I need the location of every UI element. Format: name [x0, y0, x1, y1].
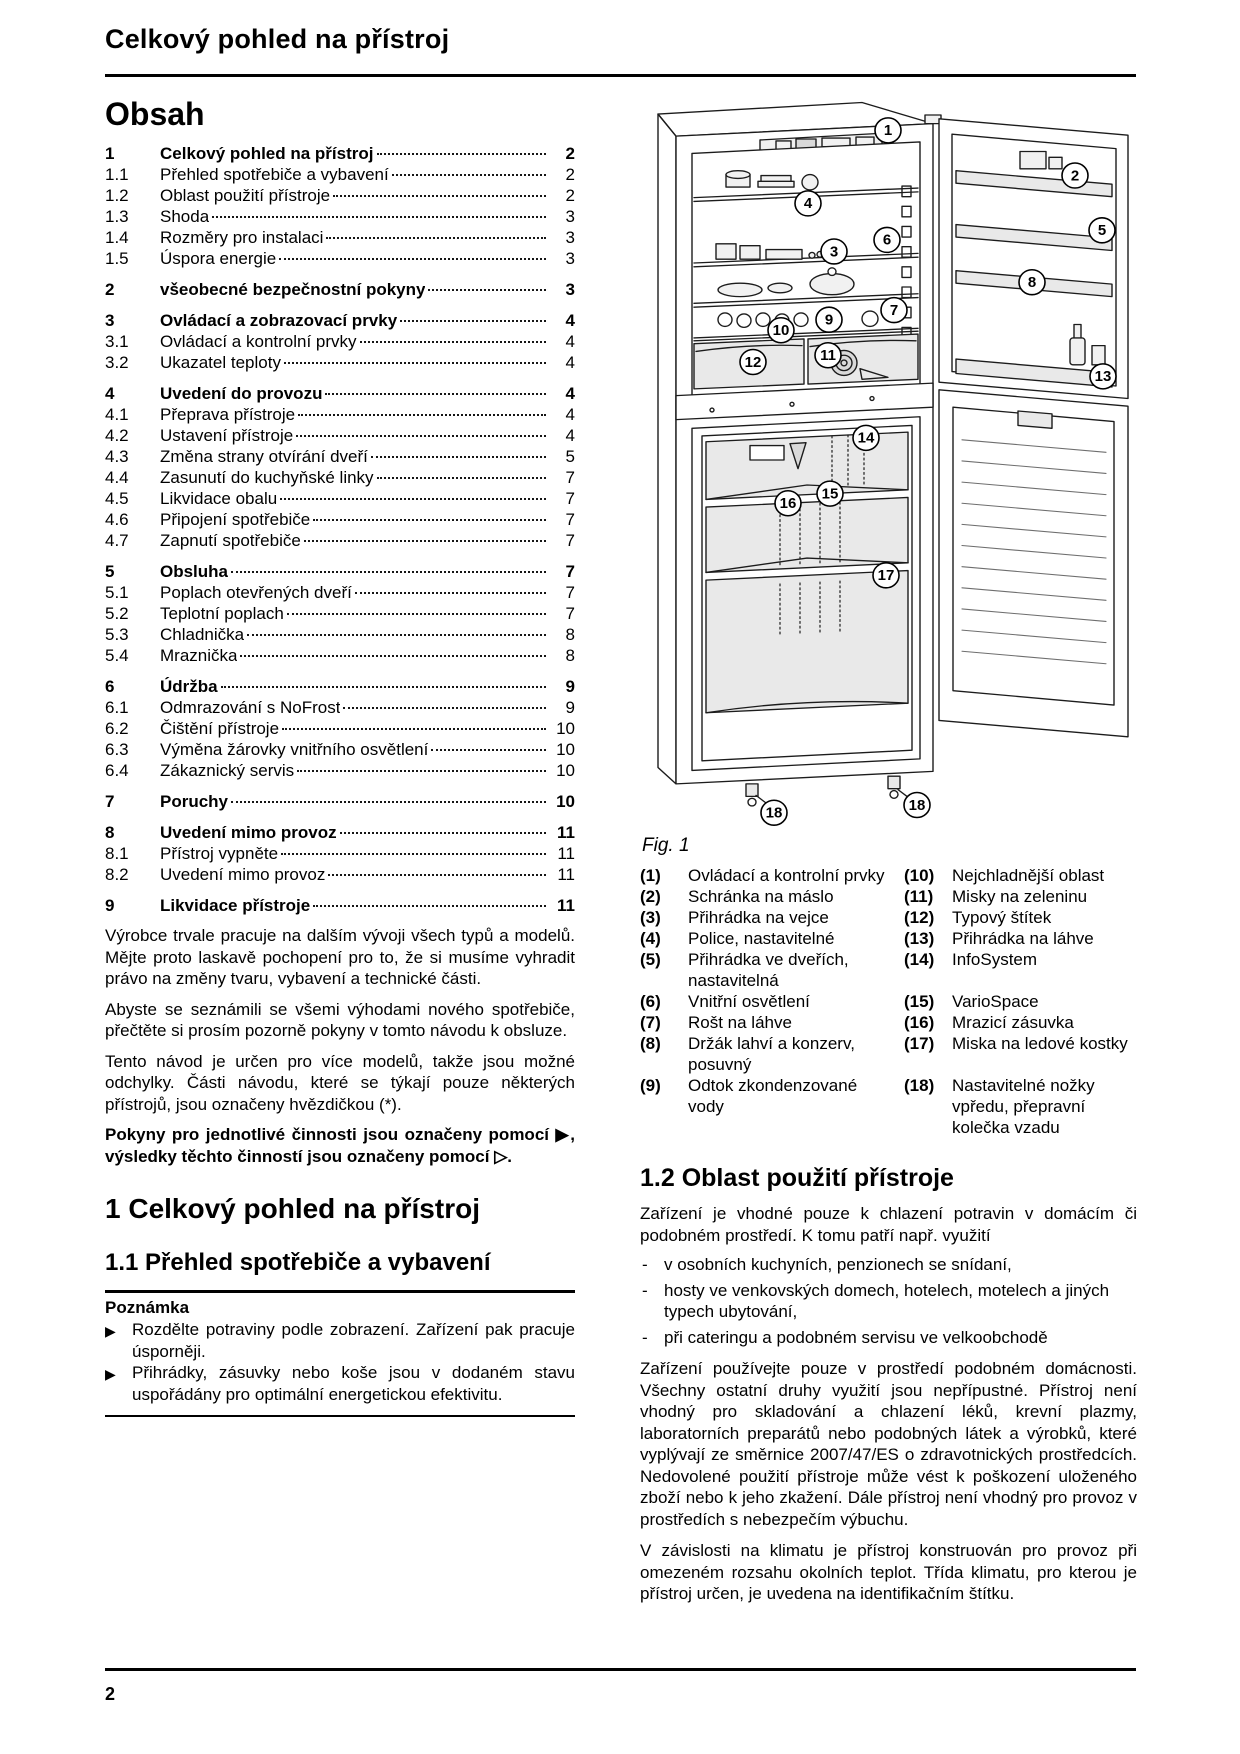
- svg-text:17: 17: [878, 568, 895, 584]
- svg-text:18: 18: [766, 806, 783, 822]
- toc-entry-page: 2: [549, 185, 575, 206]
- callout-2: 2: [1062, 163, 1088, 188]
- toc-row: 4.2 Ustavení přístroje 4: [105, 425, 575, 446]
- toc-entry-title: Teplotní poplach: [160, 603, 284, 624]
- legend-item-number: (4): [640, 928, 688, 949]
- freezer-door-handle-recess: [1018, 411, 1052, 428]
- legend-item-text: Rošt na láhve: [688, 1012, 896, 1033]
- toc-entry-title: Ovládací a kontrolní prvky: [160, 331, 357, 352]
- left-column: Obsah 1 Celkový pohled na přístroj 2 1.1…: [105, 92, 575, 1417]
- toc-entry-title: Uvedení do provozu: [160, 383, 322, 404]
- legend-item-number: (10): [904, 865, 952, 886]
- toc-row: 6.2 Čištění přístroje 10: [105, 718, 575, 739]
- legend-item: (16) Mrazicí zásuvka: [904, 1012, 1137, 1033]
- toc-entry-title: Zákaznický servis: [160, 760, 294, 781]
- legend-item-number: (13): [904, 928, 952, 949]
- action-triangle-icon: ▶: [105, 1319, 132, 1362]
- callout-18-left: 18: [761, 800, 787, 825]
- callout-4: 4: [795, 191, 821, 216]
- toc-entry-page: 4: [549, 331, 575, 352]
- section-1-2-paragraph: Zařízení používejte pouze v prostředí po…: [640, 1358, 1137, 1530]
- toc-entry-title: Výměna žárovky vnitřního osvětlení: [160, 739, 428, 760]
- legend-item-number: (16): [904, 1012, 952, 1033]
- svg-text:8: 8: [1028, 275, 1036, 291]
- callout-15: 15: [817, 481, 843, 506]
- legend-item-text: Police, nastavitelné: [688, 928, 896, 949]
- toc-entry-number: 6.2: [105, 718, 160, 739]
- toc-entry-number: 4.3: [105, 446, 160, 467]
- section-1-heading: 1 Celkový pohled na přístroj: [105, 1193, 575, 1225]
- toc-entry-page: 8: [549, 624, 575, 645]
- legend-item: (4) Police, nastavitelné: [640, 928, 896, 949]
- toc-entry-title: Rozměry pro instalaci: [160, 227, 323, 248]
- toc-row: 4.4 Zasunutí do kuchyňské linky 7: [105, 467, 575, 488]
- svg-text:4: 4: [804, 196, 813, 212]
- toc-row: 4.7 Zapnutí spotřebiče 7: [105, 530, 575, 551]
- toc-entry-title: Ukazatel teploty: [160, 352, 281, 373]
- toc-heading: Obsah: [105, 96, 575, 133]
- toc-entry-number: 5: [105, 561, 160, 582]
- toc-row: 8.2 Uvedení mimo provoz 11: [105, 864, 575, 885]
- legend-item-number: (18): [904, 1075, 952, 1096]
- toc-entry-number: 3: [105, 310, 160, 331]
- toc-entry-title: Likvidace přístroje: [160, 895, 310, 916]
- legend-item-text: Miska na ledové kostky: [952, 1033, 1137, 1054]
- svg-text:10: 10: [773, 323, 790, 339]
- table-of-contents: 1 Celkový pohled na přístroj 2 1.1 Přehl…: [105, 143, 575, 916]
- toc-row: 6 Údržba 9: [105, 676, 575, 697]
- toc-entry-title: Oblast použití přístroje: [160, 185, 330, 206]
- legend-item-number: (6): [640, 991, 688, 1012]
- callout-8: 8: [1019, 270, 1045, 295]
- fridge-figure: 1 2 4 5 6 3 8 7 9 10 11 12 13 14 15 16 1…: [640, 90, 1137, 830]
- usage-bullet-text: při cateringu a podobném servisu ve velk…: [664, 1327, 1137, 1349]
- toc-row: 1.5 Úspora energie 3: [105, 248, 575, 269]
- toc-dot-leader: [279, 258, 546, 260]
- legend-item: (17) Miska na ledové kostky: [904, 1033, 1137, 1075]
- toc-dot-leader: [282, 728, 546, 730]
- toc-entry-number: 1.5: [105, 248, 160, 269]
- toc-row: 4.3 Změna strany otvírání dveří 5: [105, 446, 575, 467]
- toc-entry-page: 7: [549, 561, 575, 582]
- legend-item: (2) Schránka na máslo: [640, 886, 896, 907]
- svg-text:5: 5: [1098, 223, 1106, 239]
- svg-text:11: 11: [820, 348, 836, 364]
- toc-entry-page: 3: [549, 248, 575, 269]
- toc-entry-page: 3: [549, 206, 575, 227]
- toc-dot-leader: [212, 216, 546, 218]
- legend-item-number: (1): [640, 865, 688, 886]
- toc-entry-number: 9: [105, 895, 160, 916]
- toc-entry-title: Ustavení přístroje: [160, 425, 293, 446]
- toc-entry-number: 4.4: [105, 467, 160, 488]
- freezer-door: [939, 390, 1128, 737]
- legend-item-text: Odtok zkondenzované vody: [688, 1075, 896, 1117]
- toc-row: 4.1 Přeprava přístroje 4: [105, 404, 575, 425]
- legend-item: (3) Přihrádka na vejce: [640, 907, 896, 928]
- toc-row: 5.4 Mraznička 8: [105, 645, 575, 666]
- toc-row: 5 Obsluha 7: [105, 561, 575, 582]
- callout-18-right: 18: [904, 793, 930, 818]
- legend-item: (14) InfoSystem: [904, 949, 1137, 991]
- right-column: 1 2 4 5 6 3 8 7 9 10 11 12 13 14 15 16 1…: [640, 90, 1137, 1605]
- toc-dot-leader: [296, 435, 546, 437]
- legend-item-number: (12): [904, 907, 952, 928]
- callout-17: 17: [873, 563, 899, 588]
- adjustable-foot: [746, 784, 758, 796]
- toc-dot-leader: [360, 341, 546, 343]
- toc-row: 5.3 Chladnička 8: [105, 624, 575, 645]
- toc-row: 3.1 Ovládací a kontrolní prvky 4: [105, 331, 575, 352]
- legend-item-text: Nejchladnější oblast: [952, 865, 1137, 886]
- toc-dot-leader: [333, 195, 546, 197]
- legend-item-text: Nastavitelné nožky vpředu, přepravní kol…: [952, 1075, 1137, 1138]
- toc-dot-leader: [280, 498, 546, 500]
- toc-entry-number: 6.4: [105, 760, 160, 781]
- legend-item: (15) VarioSpace: [904, 991, 1137, 1012]
- toc-entry-title: Přístroj vypněte: [160, 843, 278, 864]
- toc-entry-number: 2: [105, 279, 160, 300]
- toc-entry-title: Ovládací a zobrazovací prvky: [160, 310, 397, 331]
- intro-bold-paragraph: Pokyny pro jednotlivé činnosti jsou ozna…: [105, 1124, 575, 1167]
- toc-entry-number: 1.1: [105, 164, 160, 185]
- toc-entry-page: 11: [549, 843, 575, 864]
- toc-entry-number: 8: [105, 822, 160, 843]
- figure-legend: (1) Ovládací a kontrolní prvky (10) Nejc…: [640, 865, 1137, 1138]
- legend-item: (9) Odtok zkondenzované vody: [640, 1075, 896, 1138]
- legend-item: (1) Ovládací a kontrolní prvky: [640, 865, 896, 886]
- toc-dot-leader: [304, 540, 546, 542]
- toc-entry-number: 5.3: [105, 624, 160, 645]
- toc-entry-page: 4: [549, 404, 575, 425]
- toc-entry-number: 4.2: [105, 425, 160, 446]
- toc-dot-leader: [313, 905, 546, 907]
- note-bullet-text: Přihrádky, zásuvky nebo koše jsou v doda…: [132, 1362, 575, 1405]
- toc-row: 8 Uvedení mimo provoz 11: [105, 822, 575, 843]
- toc-dot-leader: [340, 832, 546, 834]
- toc-dot-leader: [284, 362, 546, 364]
- dash-marker: -: [640, 1280, 664, 1323]
- toc-row: 1.2 Oblast použití přístroje 2: [105, 185, 575, 206]
- toc-dot-leader: [392, 174, 546, 176]
- toc-entry-number: 4: [105, 383, 160, 404]
- toc-entry-number: 3.1: [105, 331, 160, 352]
- section-1-1-heading: 1.1 Přehled spotřebiče a vybavení: [105, 1249, 575, 1277]
- toc-dot-leader: [355, 592, 546, 594]
- callout-3: 3: [821, 239, 847, 264]
- callout-16: 16: [775, 491, 801, 516]
- toc-entry-title: Přehled spotřebiče a vybavení: [160, 164, 389, 185]
- note-bullet: ▶ Rozdělte potraviny podle zobrazení. Za…: [105, 1319, 575, 1362]
- toc-entry-number: 7: [105, 791, 160, 812]
- legend-item: (13) Přihrádka na láhve: [904, 928, 1137, 949]
- legend-item-text: Typový štítek: [952, 907, 1137, 928]
- toc-entry-page: 11: [549, 864, 575, 885]
- toc-dot-leader: [221, 686, 546, 688]
- usage-bullet-text: hosty ve venkovských domech, hotelech, m…: [664, 1280, 1137, 1323]
- toc-row: 2 všeobecné bezpečnostní pokyny 3: [105, 279, 575, 300]
- note-title: Poznámka: [105, 1297, 575, 1319]
- toc-entry-title: Zasunutí do kuchyňské linky: [160, 467, 374, 488]
- legend-item-number: (5): [640, 949, 688, 970]
- toc-entry-number: 1.3: [105, 206, 160, 227]
- adjustable-foot: [888, 776, 900, 788]
- toc-entry-title: Odmrazování s NoFrost: [160, 697, 340, 718]
- section-1-2-heading: 1.2 Oblast použití přístroje: [640, 1164, 1137, 1193]
- usage-bullet: - při cateringu a podobném servisu ve ve…: [640, 1327, 1137, 1349]
- toc-dot-leader: [281, 853, 546, 855]
- svg-text:6: 6: [883, 233, 891, 249]
- callout-10: 10: [768, 318, 794, 343]
- legend-item-number: (8): [640, 1033, 688, 1054]
- toc-dot-leader: [400, 320, 546, 322]
- legend-item: (10) Nejchladnější oblast: [904, 865, 1137, 886]
- legend-item: (6) Vnitřní osvětlení: [640, 991, 896, 1012]
- legend-item-text: Přihrádka na láhve: [952, 928, 1137, 949]
- header-rule: [105, 74, 1136, 77]
- legend-item-text: Přihrádka ve dveřích, nastavitelná: [688, 949, 896, 991]
- toc-dot-leader: [240, 655, 546, 657]
- toc-row: 1 Celkový pohled na přístroj 2: [105, 143, 575, 164]
- toc-row: 9 Likvidace přístroje 11: [105, 895, 575, 916]
- toc-dot-leader: [287, 613, 546, 615]
- toc-entry-number: 8.1: [105, 843, 160, 864]
- toc-entry-page: 8: [549, 645, 575, 666]
- toc-row: 1.1 Přehled spotřebiče a vybavení 2: [105, 164, 575, 185]
- legend-item-text: Přihrádka na vejce: [688, 907, 896, 928]
- intro-paragraph: Abyste se seznámili se všemi výhodami no…: [105, 999, 575, 1042]
- legend-item-text: Mrazicí zásuvka: [952, 1012, 1137, 1033]
- toc-entry-number: 5.4: [105, 645, 160, 666]
- toc-entry-page: 10: [549, 739, 575, 760]
- toc-dot-leader: [328, 874, 546, 876]
- toc-row: 3.2 Ukazatel teploty 4: [105, 352, 575, 373]
- toc-dot-leader: [326, 237, 546, 239]
- toc-entry-page: 10: [549, 718, 575, 739]
- toc-row: 5.2 Teplotní poplach 7: [105, 603, 575, 624]
- intro-paragraph: Výrobce trvale pracuje na dalším vývoji …: [105, 925, 575, 990]
- toc-entry-page: 4: [549, 425, 575, 446]
- toc-entry-number: 6.3: [105, 739, 160, 760]
- toc-entry-title: Shoda: [160, 206, 209, 227]
- dash-marker: -: [640, 1254, 664, 1276]
- toc-dot-leader: [231, 571, 546, 573]
- toc-entry-page: 3: [549, 279, 575, 300]
- toc-entry-title: Úspora energie: [160, 248, 276, 269]
- legend-item: (12) Typový štítek: [904, 907, 1137, 928]
- toc-dot-leader: [325, 393, 546, 395]
- toc-entry-page: 3: [549, 227, 575, 248]
- svg-text:1: 1: [884, 123, 892, 139]
- legend-item-text: InfoSystem: [952, 949, 1137, 970]
- usage-bullet: - v osobních kuchyních, penzionech se sn…: [640, 1254, 1137, 1276]
- svg-text:13: 13: [1095, 369, 1112, 385]
- toc-entry-title: Zapnutí spotřebiče: [160, 530, 301, 551]
- toc-row: 6.3 Výměna žárovky vnitřního osvětlení 1…: [105, 739, 575, 760]
- toc-entry-number: 8.2: [105, 864, 160, 885]
- toc-dot-leader: [297, 770, 546, 772]
- toc-dot-leader: [371, 456, 546, 458]
- toc-entry-title: Přeprava přístroje: [160, 404, 295, 425]
- callout-14: 14: [853, 425, 879, 450]
- toc-dot-leader: [431, 749, 546, 751]
- page-title: Celkový pohled na přístroj: [105, 24, 449, 55]
- toc-entry-title: Likvidace obalu: [160, 488, 277, 509]
- section-1-2-intro: Zařízení je vhodné pouze k chlazení potr…: [640, 1203, 1137, 1246]
- toc-entry-page: 7: [549, 488, 575, 509]
- toc-row: 4.5 Likvidace obalu 7: [105, 488, 575, 509]
- legend-item-number: (11): [904, 886, 952, 907]
- toc-entry-title: Uvedení mimo provoz: [160, 864, 325, 885]
- toc-row: 8.1 Přístroj vypněte 11: [105, 843, 575, 864]
- toc-entry-title: Mraznička: [160, 645, 237, 666]
- toc-entry-title: Uvedení mimo provoz: [160, 822, 337, 843]
- toc-dot-leader: [313, 519, 546, 521]
- note-bullet: ▶ Přihrádky, zásuvky nebo koše jsou v do…: [105, 1362, 575, 1405]
- intro-paragraph: Tento návod je určen pro více modelů, ta…: [105, 1051, 575, 1116]
- cabinet-left-side: [658, 114, 676, 784]
- footer-rule: [105, 1668, 1136, 1671]
- toc-entry-title: Připojení spotřebiče: [160, 509, 310, 530]
- legend-item-number: (7): [640, 1012, 688, 1033]
- toc-row: 5.1 Poplach otevřených dveří 7: [105, 582, 575, 603]
- toc-entry-page: 5: [549, 446, 575, 467]
- toc-entry-number: 5.2: [105, 603, 160, 624]
- toc-dot-leader: [428, 289, 546, 291]
- toc-entry-number: 4.7: [105, 530, 160, 551]
- toc-entry-title: Poruchy: [160, 791, 228, 812]
- usage-bullet-text: v osobních kuchyních, penzionech se sníd…: [664, 1254, 1137, 1276]
- toc-row: 4 Uvedení do provozu 4: [105, 383, 575, 404]
- legend-item: (5) Přihrádka ve dveřích, nastavitelná: [640, 949, 896, 991]
- legend-item-number: (2): [640, 886, 688, 907]
- legend-item-text: Držák lahví a konzerv, posuvný: [688, 1033, 896, 1075]
- callout-12: 12: [740, 349, 766, 374]
- toc-entry-number: 6.1: [105, 697, 160, 718]
- legend-item-number: (9): [640, 1075, 688, 1096]
- toc-entry-number: 1.2: [105, 185, 160, 206]
- legend-item-number: (17): [904, 1033, 952, 1054]
- usage-bullet-list: - v osobních kuchyních, penzionech se sn…: [640, 1254, 1137, 1348]
- freezer-drawer: [706, 571, 908, 713]
- callout-5: 5: [1089, 218, 1115, 243]
- toc-entry-title: Chladnička: [160, 624, 244, 645]
- toc-entry-page: 7: [549, 467, 575, 488]
- toc-entry-number: 1.4: [105, 227, 160, 248]
- toc-entry-number: 5.1: [105, 582, 160, 603]
- toc-entry-page: 7: [549, 530, 575, 551]
- toc-entry-page: 7: [549, 509, 575, 530]
- toc-entry-number: 1: [105, 143, 160, 164]
- legend-item-text: Misky na zeleninu: [952, 886, 1137, 907]
- toc-row: 3 Ovládací a zobrazovací prvky 4: [105, 310, 575, 331]
- legend-item-text: VarioSpace: [952, 991, 1137, 1012]
- toc-entry-page: 10: [549, 791, 575, 812]
- svg-text:18: 18: [909, 798, 926, 814]
- legend-item: (11) Misky na zeleninu: [904, 886, 1137, 907]
- callout-9: 9: [816, 307, 842, 332]
- toc-entry-number: 6: [105, 676, 160, 697]
- toc-entry-page: 7: [549, 603, 575, 624]
- legend-item-text: Schránka na máslo: [688, 886, 896, 907]
- footer-page-number: 2: [105, 1684, 115, 1705]
- toc-dot-leader: [231, 801, 546, 803]
- callout-6: 6: [874, 227, 900, 252]
- note-box: Poznámka ▶ Rozdělte potraviny podle zobr…: [105, 1290, 575, 1417]
- toc-entry-page: 10: [549, 760, 575, 781]
- toc-entry-page: 9: [549, 697, 575, 718]
- legend-item-number: (15): [904, 991, 952, 1012]
- toc-entry-number: 4.5: [105, 488, 160, 509]
- toc-entry-title: Poplach otevřených dveří: [160, 582, 352, 603]
- toc-entry-page: 4: [549, 352, 575, 373]
- toc-entry-page: 11: [549, 822, 575, 843]
- svg-text:7: 7: [890, 303, 898, 319]
- section-1-2-paragraph: V závislosti na klimatu je přístroj kons…: [640, 1540, 1137, 1605]
- svg-text:12: 12: [745, 355, 762, 371]
- legend-item-text: Vnitřní osvětlení: [688, 991, 896, 1012]
- legend-item-number: (3): [640, 907, 688, 928]
- legend-item: (8) Držák lahví a konzerv, posuvný: [640, 1033, 896, 1075]
- toc-entry-title: Celkový pohled na přístroj: [160, 143, 374, 164]
- toc-entry-title: Obsluha: [160, 561, 228, 582]
- callout-11: 11: [815, 343, 841, 368]
- toc-entry-page: 4: [549, 310, 575, 331]
- manual-page: Celkový pohled na přístroj Obsah 1 Celko…: [0, 0, 1240, 1754]
- toc-entry-number: 4.1: [105, 404, 160, 425]
- figure-caption: Fig. 1: [642, 835, 1137, 857]
- toc-entry-title: Změna strany otvírání dveří: [160, 446, 368, 467]
- svg-text:15: 15: [822, 487, 839, 503]
- toc-entry-page: 9: [549, 676, 575, 697]
- toc-dot-leader: [377, 153, 547, 155]
- callout-1: 1: [875, 118, 901, 143]
- svg-text:3: 3: [830, 245, 838, 261]
- toc-dot-leader: [343, 707, 546, 709]
- toc-entry-page: 2: [549, 143, 575, 164]
- toc-entry-title: Čištění přístroje: [160, 718, 279, 739]
- note-bullet-text: Rozdělte potraviny podle zobrazení. Zaří…: [132, 1319, 575, 1362]
- svg-text:9: 9: [825, 313, 833, 329]
- toc-entry-page: 4: [549, 383, 575, 404]
- toc-dot-leader: [247, 634, 546, 636]
- toc-row: 1.4 Rozměry pro instalaci 3: [105, 227, 575, 248]
- toc-entry-number: 4.6: [105, 509, 160, 530]
- toc-row: 1.3 Shoda 3: [105, 206, 575, 227]
- legend-item: (7) Rošt na láhve: [640, 1012, 896, 1033]
- toc-dot-leader: [298, 414, 546, 416]
- legend-item-number: (14): [904, 949, 952, 970]
- toc-row: 6.1 Odmrazování s NoFrost 9: [105, 697, 575, 718]
- callout-13: 13: [1090, 364, 1116, 389]
- note-bullet-list: ▶ Rozdělte potraviny podle zobrazení. Za…: [105, 1319, 575, 1405]
- toc-entry-page: 11: [549, 895, 575, 916]
- toc-dot-leader: [377, 477, 546, 479]
- toc-row: 7 Poruchy 10: [105, 791, 575, 812]
- svg-text:16: 16: [780, 496, 797, 512]
- svg-text:14: 14: [858, 431, 876, 447]
- action-triangle-icon: ▶: [105, 1362, 132, 1405]
- toc-entry-title: všeobecné bezpečnostní pokyny: [160, 279, 425, 300]
- callout-7: 7: [881, 298, 907, 323]
- toc-row: 4.6 Připojení spotřebiče 7: [105, 509, 575, 530]
- legend-item-text: Ovládací a kontrolní prvky: [688, 865, 896, 886]
- usage-bullet: - hosty ve venkovských domech, hotelech,…: [640, 1280, 1137, 1323]
- svg-text:2: 2: [1071, 169, 1079, 185]
- toc-entry-number: 3.2: [105, 352, 160, 373]
- toc-entry-page: 7: [549, 582, 575, 603]
- toc-entry-page: 2: [549, 164, 575, 185]
